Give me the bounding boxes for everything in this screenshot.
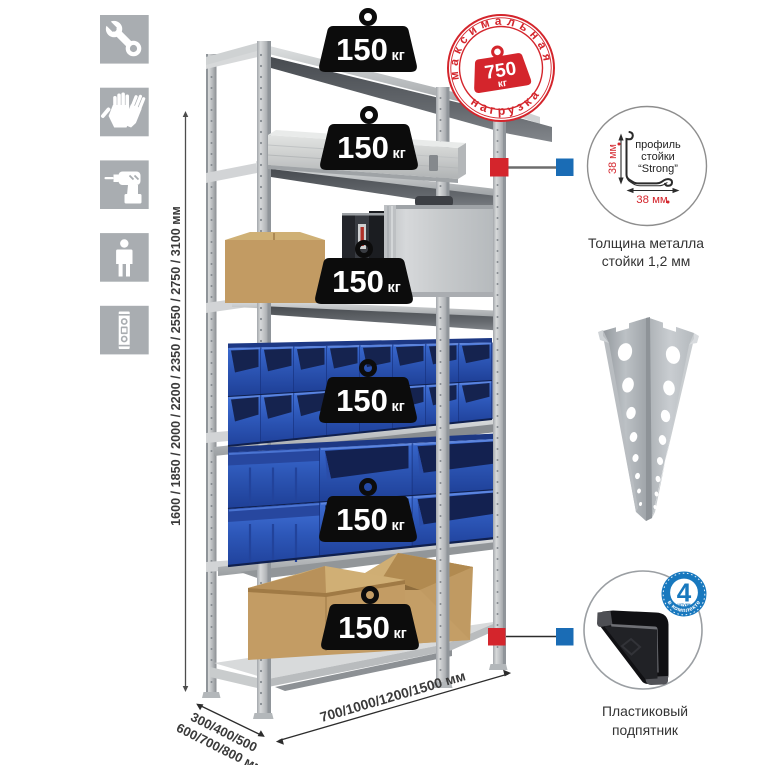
svg-text:Пластиковый: Пластиковый xyxy=(602,703,688,719)
svg-text:штуки: штуки xyxy=(677,602,691,607)
svg-text:кг: кг xyxy=(392,399,405,415)
svg-text:150: 150 xyxy=(336,383,388,418)
svg-text:38 мм: 38 мм xyxy=(636,194,668,206)
svg-text:кг: кг xyxy=(392,48,405,64)
svg-text:кг: кг xyxy=(393,146,406,162)
svg-text:кг: кг xyxy=(392,518,405,534)
svg-text:150: 150 xyxy=(338,610,390,645)
svg-text:кг: кг xyxy=(394,626,407,642)
svg-text:кг: кг xyxy=(388,280,401,296)
svg-text:150: 150 xyxy=(336,502,388,537)
svg-text:1600 / 1850 / 2000 / 2200 / 23: 1600 / 1850 / 2000 / 2200 / 2350 / 2550 … xyxy=(169,206,183,526)
svg-text:150: 150 xyxy=(336,32,388,67)
svg-text:Толщина металла: Толщина металла xyxy=(588,235,704,251)
svg-text:150: 150 xyxy=(337,130,389,165)
svg-text:38 мм: 38 мм xyxy=(607,144,619,174)
svg-text:кг: кг xyxy=(497,78,508,90)
svg-text:стойки 1,2 мм: стойки 1,2 мм xyxy=(602,253,691,269)
svg-text:“Strong”: “Strong” xyxy=(638,163,678,175)
svg-text:профиль: профиль xyxy=(635,139,681,151)
svg-text:150: 150 xyxy=(332,264,384,299)
svg-text:подпятник: подпятник xyxy=(612,722,679,738)
svg-text:стойки: стойки xyxy=(641,151,675,163)
